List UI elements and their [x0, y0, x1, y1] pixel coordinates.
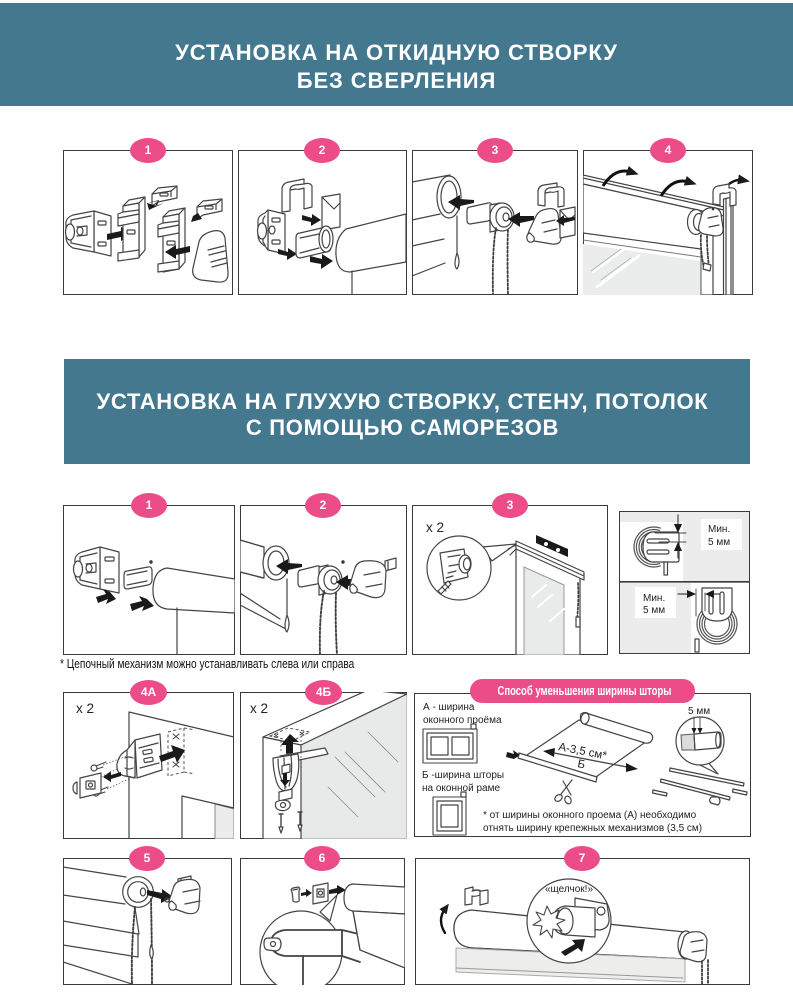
svg-text:x 2: x 2	[250, 701, 268, 716]
svg-text:5 мм: 5 мм	[688, 706, 710, 717]
svg-text:x 2: x 2	[426, 520, 444, 535]
svg-text:5 мм: 5 мм	[643, 605, 665, 616]
svg-text:Мин.: Мин.	[643, 593, 665, 604]
svg-text:* от ширины оконного проема (А: * от ширины оконного проема (А) необходи…	[483, 809, 697, 821]
svg-text:Мин.: Мин.	[708, 524, 730, 535]
svg-text:x 2: x 2	[76, 701, 94, 716]
svg-text:отнять ширину крепежных механи: отнять ширину крепежных механизмов (3,5 …	[483, 823, 702, 834]
svg-text:А - ширина: А - ширина	[423, 702, 475, 713]
svg-text:5 мм: 5 мм	[708, 537, 730, 548]
svg-text:«щелчок!»: «щелчок!»	[545, 884, 593, 895]
svg-text:оконного проёма: оконного проёма	[423, 715, 502, 726]
svg-text:Б -ширина шторы: Б -ширина шторы	[422, 770, 504, 781]
